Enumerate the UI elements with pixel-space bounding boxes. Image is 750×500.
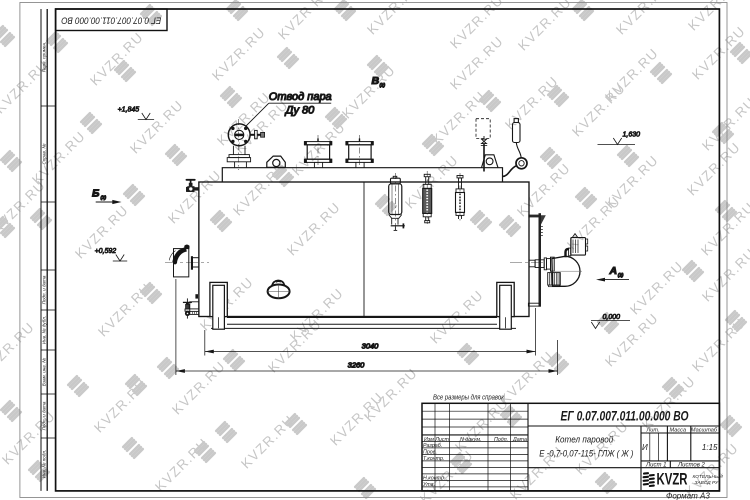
svg-text:Т.контр.: Т.контр. [423,456,444,462]
svg-text:Формат А3: Формат А3 [666,491,710,500]
svg-text:В: В [372,75,380,87]
svg-text:Масштаб: Масштаб [691,428,718,434]
svg-text:1:15: 1:15 [702,443,718,452]
svg-text:+1,845: +1,845 [118,107,140,114]
svg-text:N докум.: N докум. [460,437,481,443]
svg-text:И: И [642,443,648,452]
svg-text:Ду 80: Ду 80 [284,105,316,117]
svg-text:ЕГ 0.07.007.011.00.000 ВО: ЕГ 0.07.007.011.00.000 ВО [561,408,689,424]
svg-text:Н.контр.: Н.контр. [423,475,445,481]
svg-text:Пров.: Пров. [423,449,437,455]
svg-text:Подп. и дата: Подп. и дата [42,401,47,430]
svg-text:+0,592: +0,592 [95,248,117,255]
svg-text:Подп. и дата: Подп. и дата [42,275,47,304]
svg-text:Лист 1: Лист 1 [645,462,666,468]
svg-text:ЗАВОД РУ: ЗАВОД РУ [695,480,719,486]
svg-text:Дата: Дата [512,437,527,443]
svg-text:Лит.: Лит. [645,428,659,434]
svg-text:(2): (2) [618,272,624,277]
svg-text:1,630: 1,630 [623,132,641,139]
svg-text:3040: 3040 [362,341,380,350]
svg-text:(2): (2) [380,82,386,87]
svg-text:Инв. № дубл.: Инв. № дубл. [42,316,47,344]
svg-text:Инв. № подл.: Инв. № подл. [42,450,47,479]
svg-text:0,000: 0,000 [603,314,621,321]
svg-text:Котел паровой: Котел паровой [555,434,614,445]
svg-text:(2): (2) [101,195,107,200]
svg-text:Утв.: Утв. [423,482,435,488]
svg-text:ЕГ 0.07.007.011.00.000 ВО: ЕГ 0.07.007.011.00.000 ВО [61,15,162,26]
svg-text:Разраб.: Разраб. [423,443,442,449]
svg-text:Масса: Масса [670,428,687,434]
svg-text:Взам. инв. №: Взам. инв. № [42,358,47,386]
svg-text:Перв. примен.: Перв. примен. [42,42,47,73]
svg-text:Листов 2: Листов 2 [677,462,706,468]
svg-text:Е -0,7-0,07-115- ГЛЖ ( Ж ): Е -0,7-0,07-115- ГЛЖ ( Ж ) [539,448,633,458]
svg-text:А: А [609,265,618,277]
svg-text:Отвод пара: Отвод пара [269,91,332,103]
svg-text:Подп.: Подп. [494,437,508,443]
svg-text:Справ. №: Справ. № [42,144,47,165]
svg-text:Б: Б [92,188,100,200]
svg-text:KVZR: KVZR [657,471,688,489]
svg-text:3260: 3260 [348,361,366,370]
svg-text:Все размеры для справок: Все размеры для справок [433,393,504,402]
